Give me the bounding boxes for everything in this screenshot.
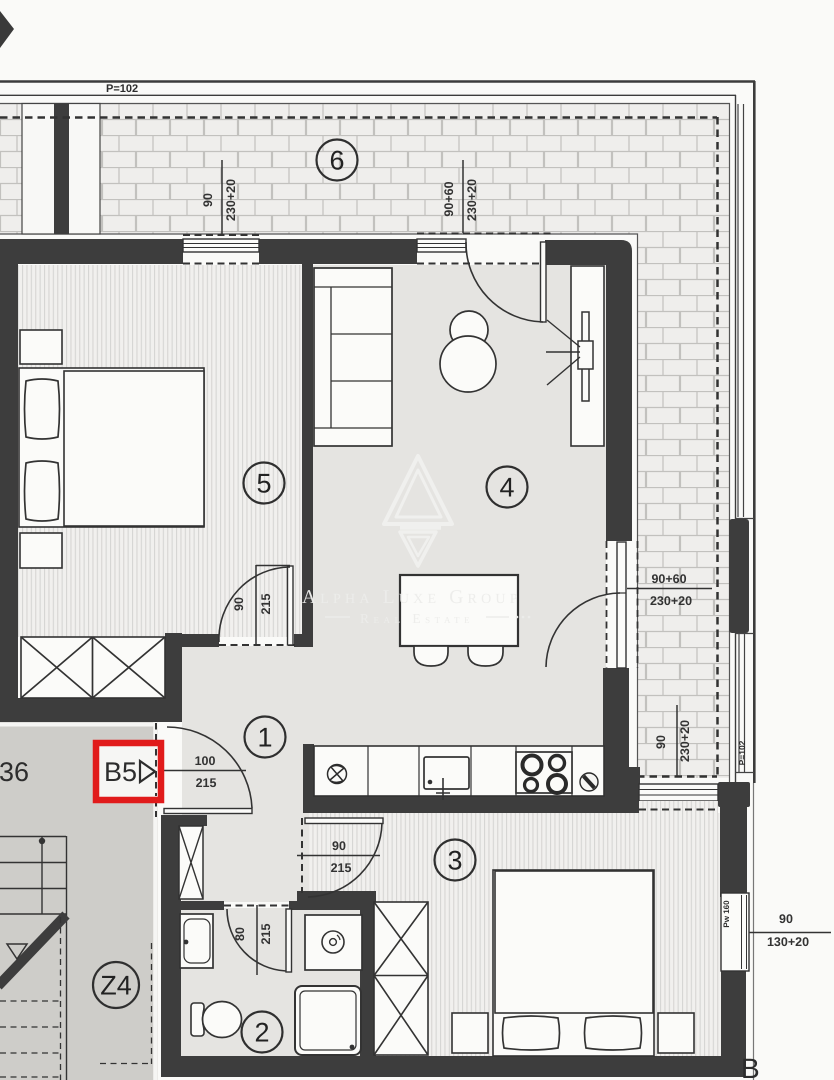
svg-text:230+20: 230+20 bbox=[650, 594, 692, 608]
svg-text:5: 5 bbox=[256, 469, 271, 499]
svg-text:230+20: 230+20 bbox=[224, 179, 238, 221]
svg-text:90: 90 bbox=[779, 912, 793, 926]
svg-text:6: 6 bbox=[329, 146, 344, 176]
svg-text:230+20: 230+20 bbox=[465, 179, 479, 221]
svg-text:215: 215 bbox=[196, 776, 217, 790]
svg-text:215: 215 bbox=[259, 924, 273, 945]
svg-text:1: 1 bbox=[257, 723, 272, 753]
svg-text:Alpha Luxe Group: Alpha Luxe Group bbox=[302, 587, 522, 608]
svg-text:215: 215 bbox=[259, 594, 273, 615]
svg-text:B5: B5 bbox=[104, 757, 137, 787]
svg-text:Real Estate: Real Estate bbox=[360, 611, 474, 626]
svg-text:P=102: P=102 bbox=[106, 83, 138, 95]
svg-text:4: 4 bbox=[499, 473, 514, 503]
svg-text:230+20: 230+20 bbox=[678, 720, 692, 762]
svg-text:130+20: 130+20 bbox=[767, 935, 809, 949]
svg-text:215: 215 bbox=[331, 861, 352, 875]
svg-text:3: 3 bbox=[447, 846, 462, 876]
svg-text:90: 90 bbox=[201, 193, 215, 207]
svg-text:2: 2 bbox=[254, 1018, 269, 1048]
svg-text:90+60: 90+60 bbox=[442, 181, 456, 216]
svg-text:100: 100 bbox=[195, 754, 216, 768]
svg-text:B: B bbox=[741, 1053, 760, 1080]
svg-text:90+60: 90+60 bbox=[651, 572, 686, 586]
svg-text:36: 36 bbox=[0, 757, 29, 787]
svg-text:80: 80 bbox=[233, 927, 247, 941]
svg-text:90: 90 bbox=[332, 839, 346, 853]
svg-text:P=102: P=102 bbox=[737, 740, 747, 765]
svg-text:90: 90 bbox=[654, 735, 668, 749]
svg-text:Z4: Z4 bbox=[100, 971, 132, 1001]
svg-text:Pw 160: Pw 160 bbox=[722, 900, 731, 928]
svg-text:90: 90 bbox=[232, 597, 246, 611]
